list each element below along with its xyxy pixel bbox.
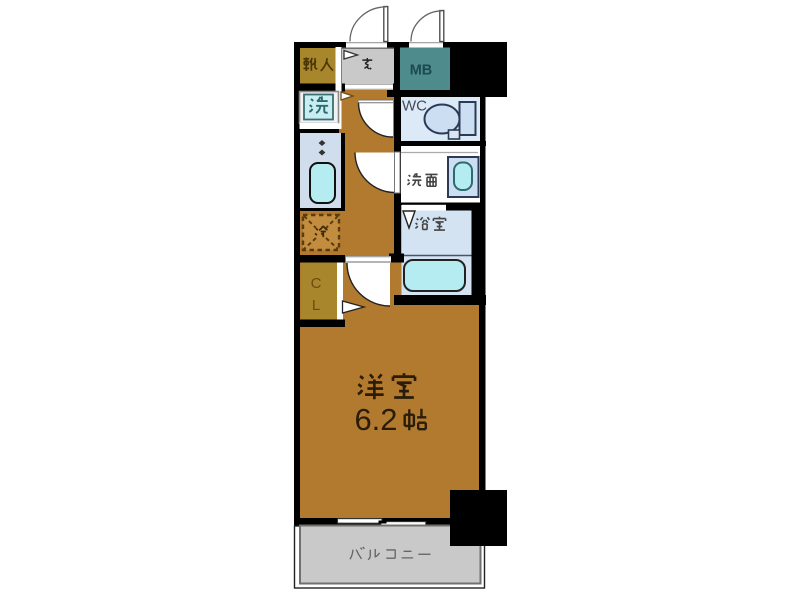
svg-text:L: L	[312, 297, 320, 314]
svg-text:MB: MB	[410, 63, 433, 79]
svg-text:6.2: 6.2	[354, 402, 397, 437]
svg-text:C: C	[311, 275, 322, 292]
svg-text:WC: WC	[402, 98, 427, 115]
